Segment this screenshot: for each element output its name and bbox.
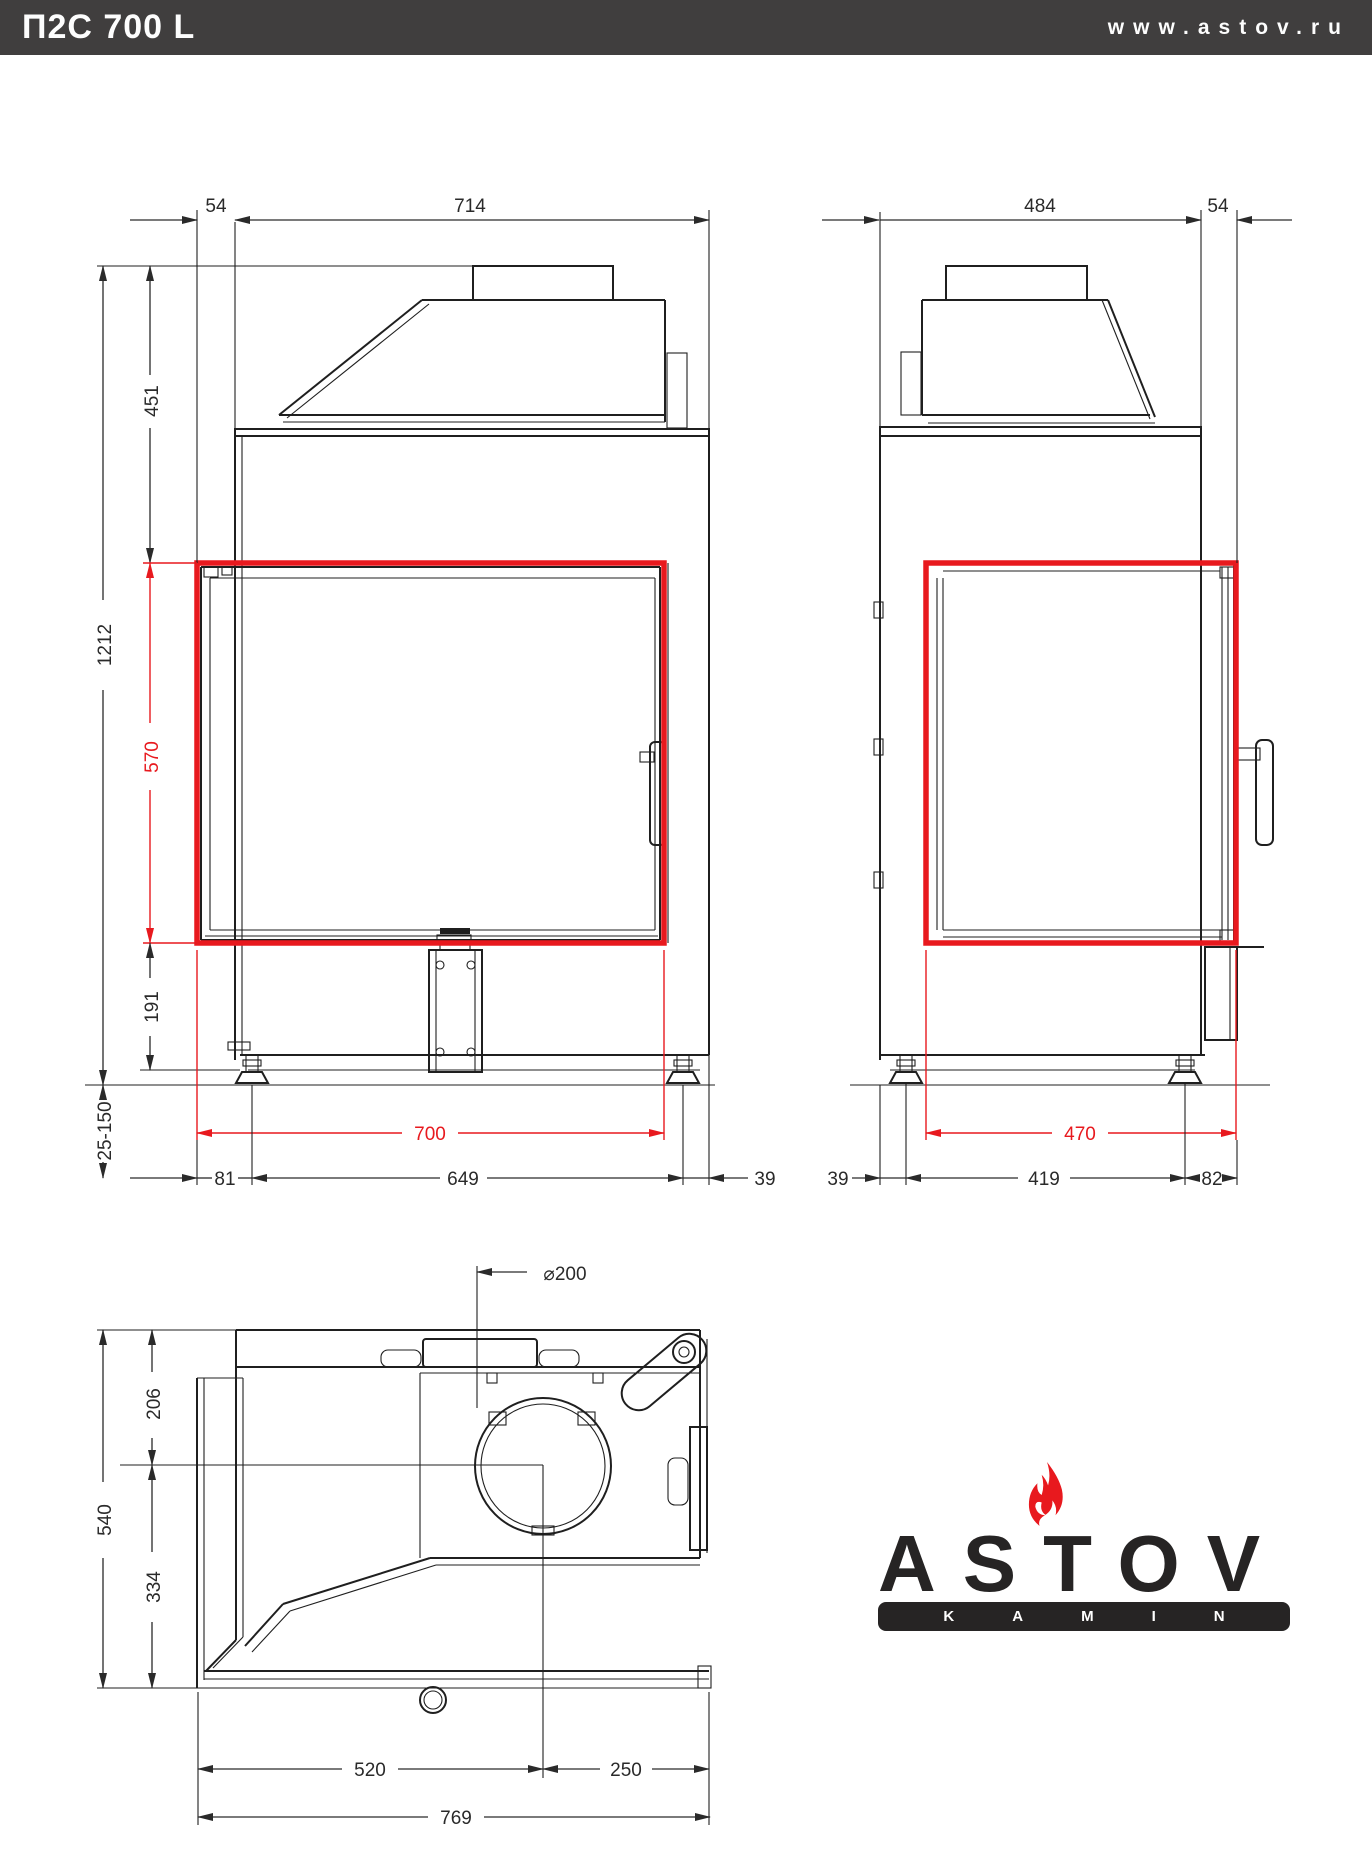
dim-front-width-top: 714 bbox=[454, 196, 486, 217]
dim-front-offset-top: 54 bbox=[205, 196, 227, 217]
side-view: 484 54 470 39 419 82 bbox=[822, 196, 1292, 1190]
dim-top-flue-diameter: ⌀200 bbox=[543, 1264, 586, 1285]
model-title: П2С 700 L bbox=[22, 8, 195, 47]
dim-side-back-offset: 39 bbox=[827, 1169, 848, 1190]
front-glass-highlight bbox=[197, 563, 664, 943]
dim-side-leg-span: 419 bbox=[1028, 1169, 1060, 1190]
side-view-outline bbox=[850, 210, 1273, 1085]
dim-side-front-leg-offset: 82 bbox=[1201, 1169, 1222, 1190]
dim-front-hood-height: 451 bbox=[142, 385, 163, 417]
side-front-foot bbox=[1169, 1055, 1201, 1083]
dim-front-leg-range: 25-150 bbox=[95, 1101, 116, 1160]
dim-side-front-offset: 54 bbox=[1207, 196, 1229, 217]
website-link[interactable]: www.astov.ru bbox=[1108, 16, 1350, 40]
dim-front-right-offset: 39 bbox=[754, 1169, 775, 1190]
side-rear-foot bbox=[890, 1055, 922, 1083]
dim-front-left-offset: 81 bbox=[214, 1169, 235, 1190]
dim-top-flue-back-offset: 206 bbox=[144, 1388, 165, 1420]
dim-front-glass-width: 700 bbox=[414, 1124, 446, 1145]
top-view: ⌀200 540 206 334 520 250 bbox=[95, 1264, 713, 1829]
corner-bracket bbox=[615, 1327, 713, 1417]
top-view-dimensions: ⌀200 540 206 334 520 250 bbox=[95, 1264, 710, 1829]
dim-top-flue-right-offset: 250 bbox=[610, 1760, 642, 1781]
top-view-outline bbox=[97, 1327, 713, 1778]
logo-brand-text: ASTOV bbox=[878, 1524, 1287, 1604]
header-bar: П2С 700 L www.astov.ru bbox=[0, 0, 1372, 55]
front-view-outline bbox=[85, 210, 715, 1085]
dim-side-glass-depth: 470 bbox=[1064, 1124, 1096, 1145]
front-left-foot bbox=[236, 1055, 268, 1083]
dim-top-flue-left-offset: 520 bbox=[354, 1760, 386, 1781]
door-handle-mount bbox=[640, 752, 654, 762]
logo-tagline-bar: KAMIN bbox=[878, 1602, 1290, 1631]
dim-front-glass-height: 570 bbox=[142, 741, 163, 773]
dim-top-total-depth: 540 bbox=[95, 1504, 116, 1536]
side-glass-highlight bbox=[926, 563, 1236, 943]
dim-top-total-width: 769 bbox=[440, 1808, 472, 1829]
dim-front-base-height: 191 bbox=[142, 991, 163, 1023]
dim-front-leg-span: 649 bbox=[447, 1169, 479, 1190]
front-right-foot bbox=[667, 1055, 699, 1083]
front-view: 54 714 1212 451 570 191 25-150 bbox=[85, 196, 776, 1190]
side-door-handle[interactable] bbox=[1256, 740, 1273, 845]
dim-side-depth: 484 bbox=[1024, 196, 1056, 217]
drawing-sheet: П2С 700 L www.astov.ru bbox=[0, 0, 1372, 1851]
dim-top-flue-front-offset: 334 bbox=[144, 1571, 165, 1603]
dim-front-total-height: 1212 bbox=[95, 624, 116, 666]
